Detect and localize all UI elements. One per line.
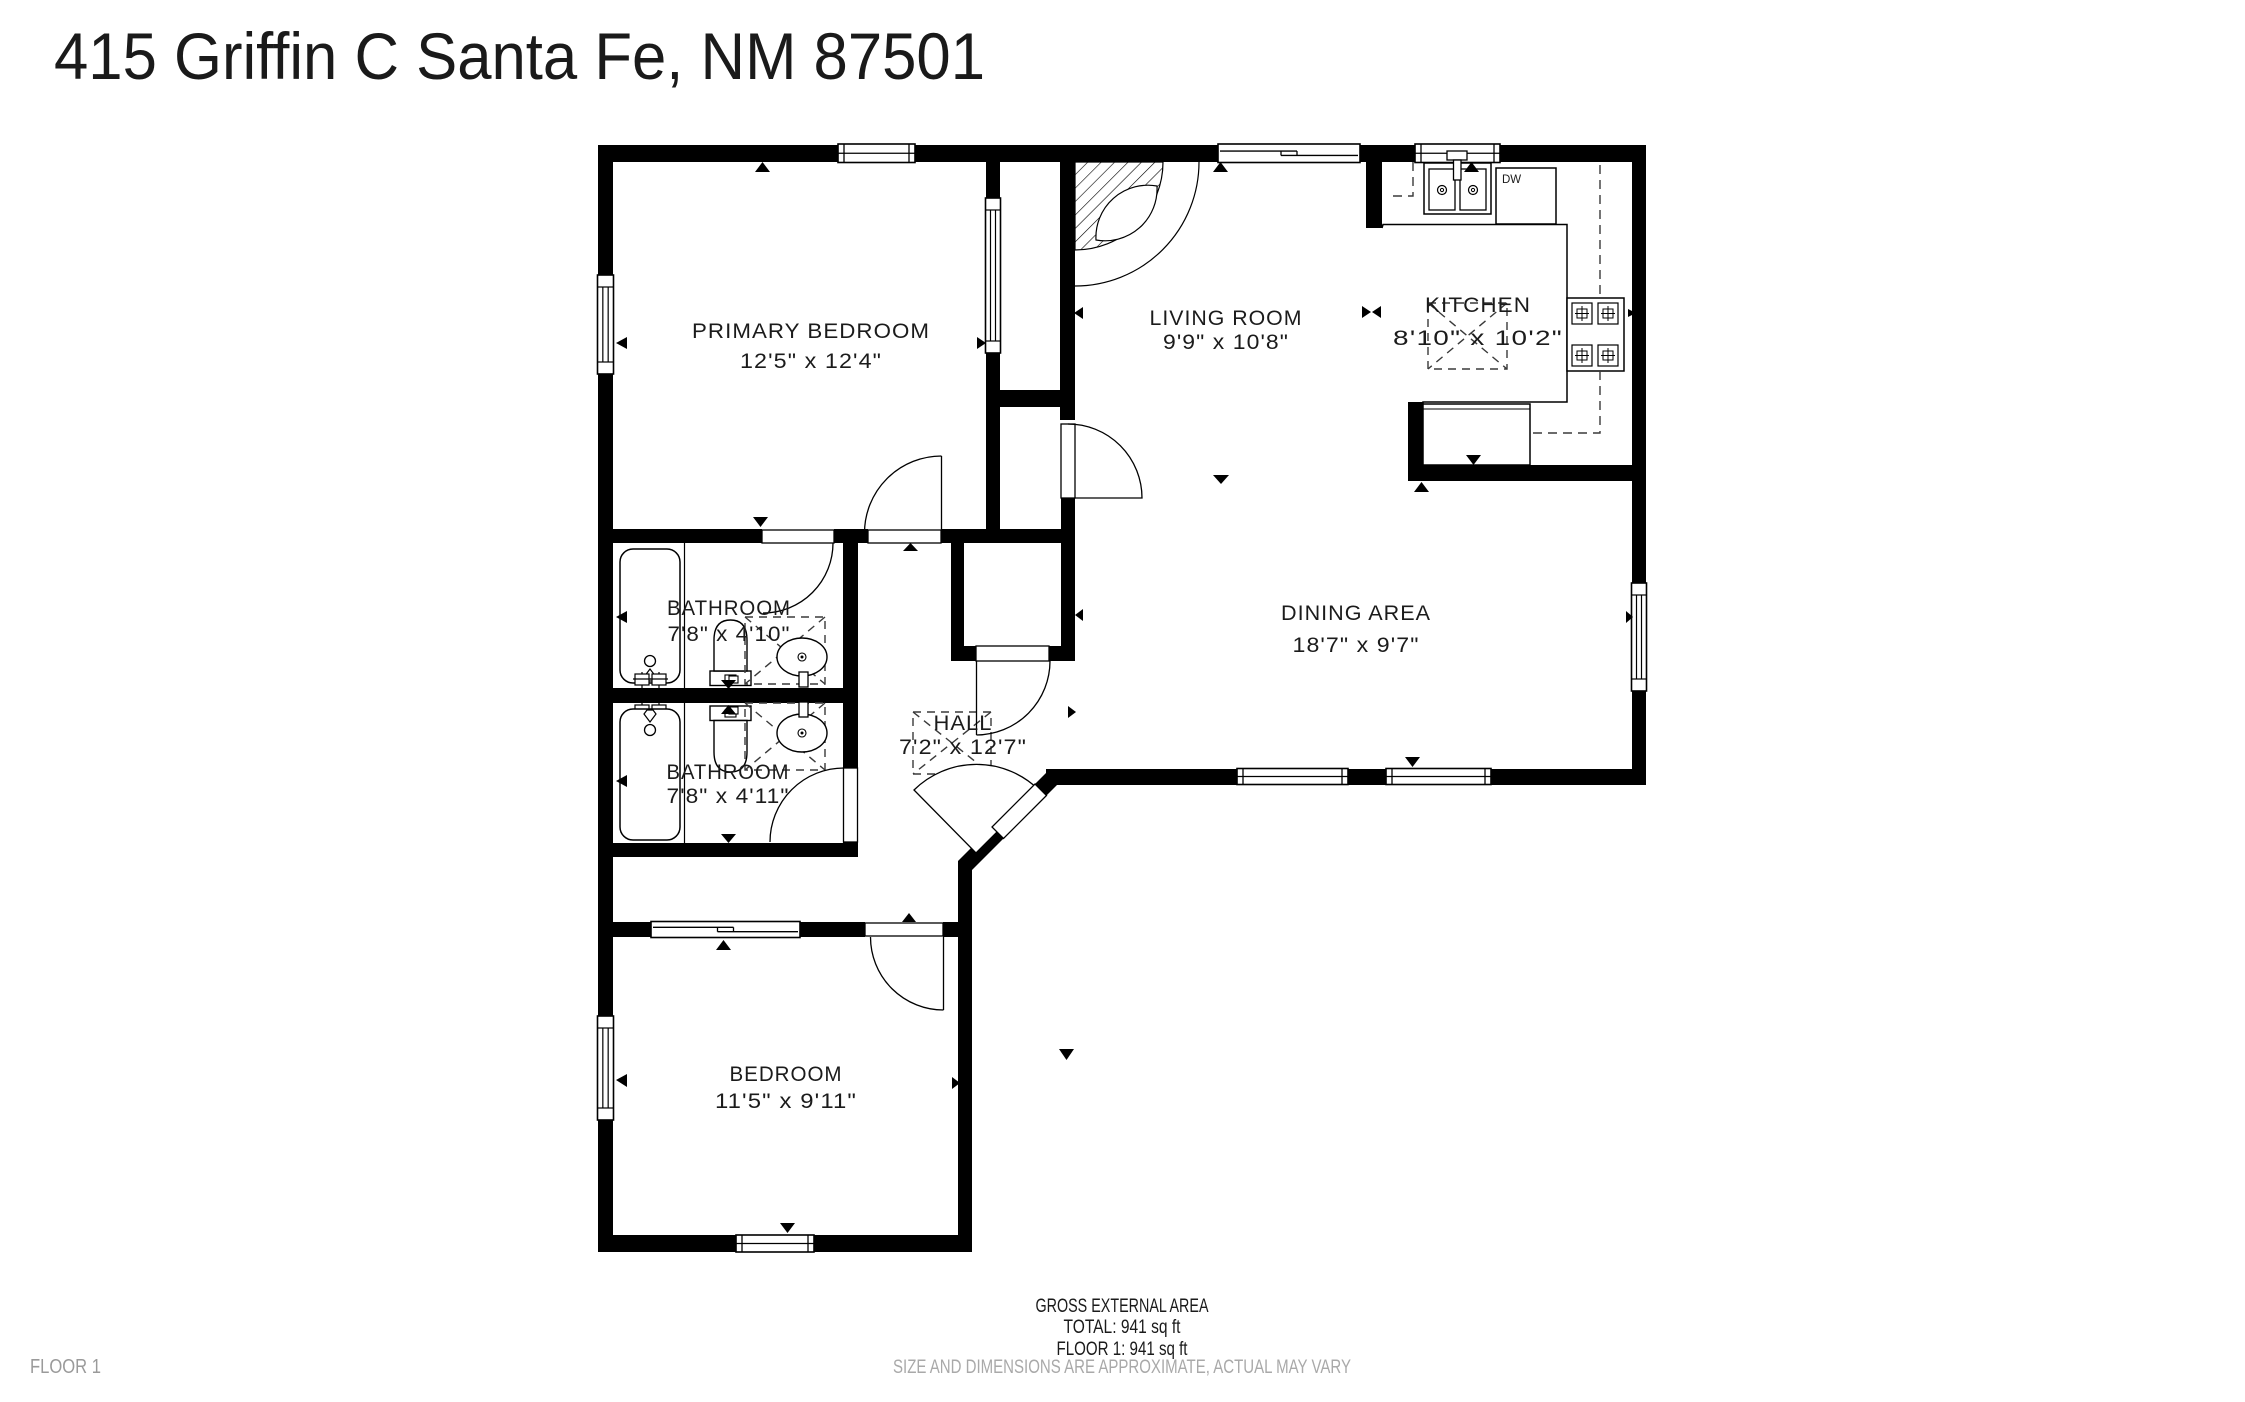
svg-text:KITCHEN: KITCHEN [1425, 293, 1531, 317]
svg-text:11'5" x 9'11": 11'5" x 9'11" [715, 1089, 857, 1113]
svg-text:BATHROOM: BATHROOM [667, 596, 791, 620]
svg-text:415 Griffin C Santa Fe, NM 875: 415 Griffin C Santa Fe, NM 87501 [54, 19, 985, 93]
svg-text:TOTAL: 941 sq ft: TOTAL: 941 sq ft [1064, 1316, 1181, 1338]
svg-text:DW: DW [1502, 174, 1521, 186]
svg-text:FLOOR 1: FLOOR 1 [30, 1356, 101, 1378]
svg-text:GROSS EXTERNAL AREA: GROSS EXTERNAL AREA [1036, 1295, 1209, 1317]
svg-text:7'8" x 4'11": 7'8" x 4'11" [667, 784, 790, 808]
svg-text:7'8" x 4'10": 7'8" x 4'10" [668, 622, 791, 646]
svg-text:BATHROOM: BATHROOM [667, 760, 790, 784]
svg-text:8'10" x 10'2": 8'10" x 10'2" [1393, 326, 1563, 350]
svg-text:SIZE AND DIMENSIONS ARE APPROX: SIZE AND DIMENSIONS ARE APPROXIMATE, ACT… [893, 1356, 1351, 1378]
svg-text:18'7" x 9'7": 18'7" x 9'7" [1293, 633, 1420, 657]
svg-text:DINING AREA: DINING AREA [1281, 601, 1431, 625]
svg-text:9'9" x 10'8": 9'9" x 10'8" [1163, 330, 1289, 354]
svg-text:12'5" x 12'4": 12'5" x 12'4" [740, 349, 882, 373]
svg-text:7'2" x 12'7": 7'2" x 12'7" [899, 735, 1027, 759]
svg-text:HALL: HALL [934, 711, 993, 735]
svg-text:LIVING ROOM: LIVING ROOM [1150, 306, 1303, 330]
svg-text:BEDROOM: BEDROOM [730, 1062, 843, 1086]
svg-text:PRIMARY BEDROOM: PRIMARY BEDROOM [692, 319, 930, 343]
